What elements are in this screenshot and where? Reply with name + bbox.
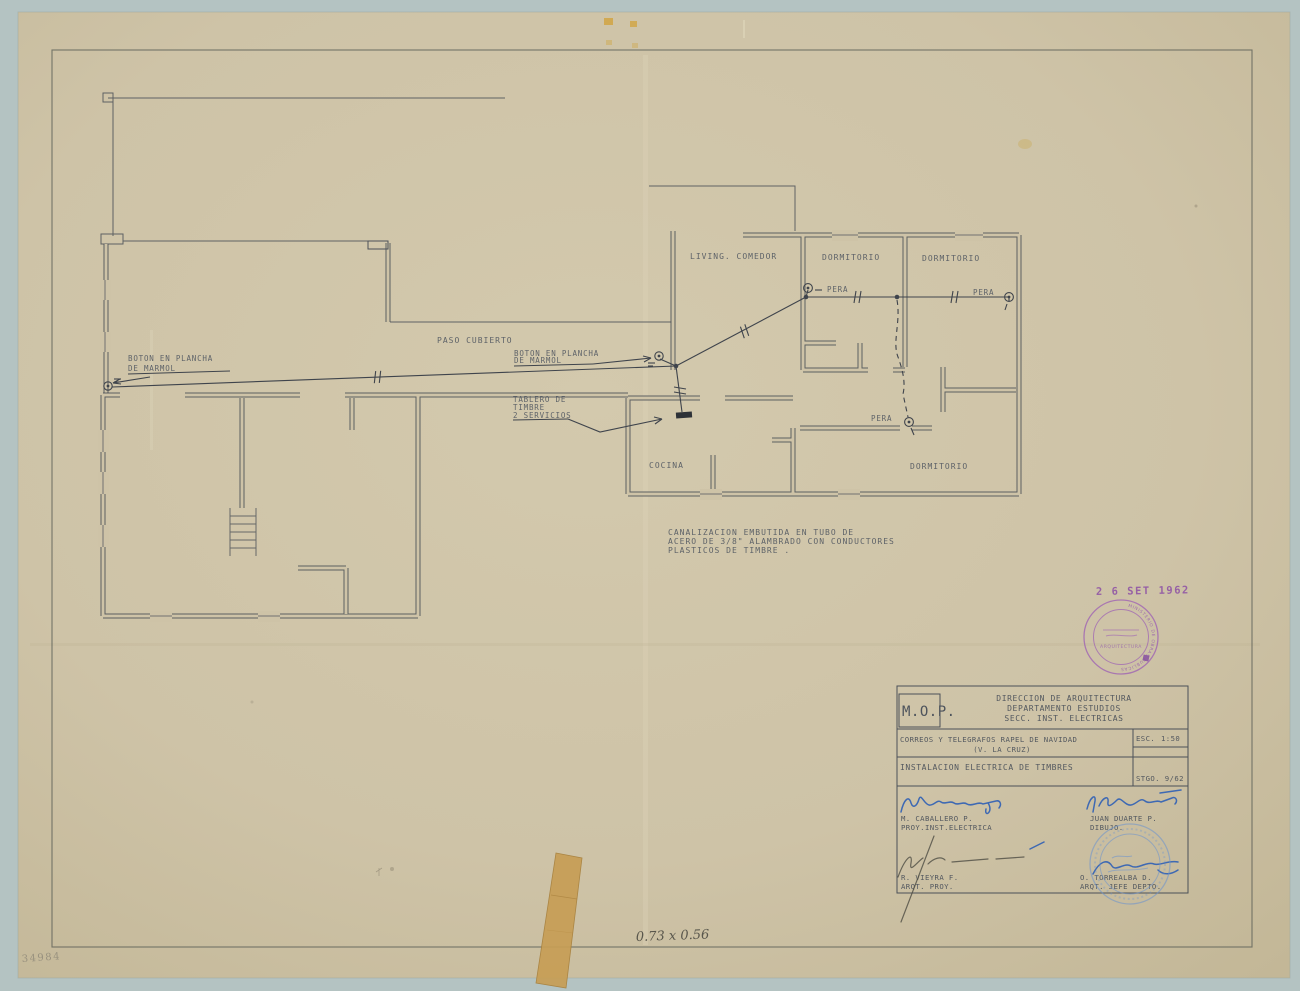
- room-label-living: LIVING. COMEDOR: [690, 252, 777, 261]
- sig3-name: R. VIEYRA F.: [901, 873, 959, 882]
- org-abbrev: M.O.P.: [902, 704, 956, 720]
- blueprint-scene: LIVING. COMEDOR DORMITORIO DORMITORIO DO…: [0, 0, 1300, 991]
- note-line-3: PLASTICOS DE TIMBRE .: [668, 546, 790, 555]
- sig1-name: M. CABALLERO P.: [901, 814, 973, 823]
- project-line-2: (V. LA CRUZ): [973, 745, 1031, 754]
- bell-panel-symbol: [676, 411, 692, 418]
- sig1-role: PROY.INST.ELECTRICA: [901, 823, 992, 832]
- pera-label-2: PERA: [973, 288, 994, 297]
- sig2-name: JUAN DUARTE P.: [1090, 814, 1157, 823]
- boton-left-line1: BOTON EN PLANCHA: [128, 354, 213, 363]
- boton-left-line2: DE MARMOL: [128, 364, 176, 373]
- room-label-dormitorio-3: DORMITORIO: [910, 462, 968, 471]
- dept-line-2: DEPARTAMENTO ESTUDIOS: [1007, 704, 1121, 713]
- room-label-dormitorio-1: DORMITORIO: [822, 253, 880, 262]
- sig3-role: ARQT. PROY.: [901, 882, 954, 891]
- note-line-2: ACERO DE 3/8" ALAMBRADO CON CONDUCTORES: [668, 537, 895, 546]
- room-label-cocina: COCINA: [649, 461, 684, 470]
- stamp-inner-text: ARQUITECTURA: [1100, 644, 1142, 650]
- dept-line-1: DIRECCION DE ARQUITECTURA: [996, 694, 1131, 703]
- boton-right-line2: DE MARMOL: [514, 356, 562, 365]
- room-label-dormitorio-2: DORMITORIO: [922, 254, 980, 263]
- dept-line-3: SECC. INST. ELECTRICAS: [1004, 714, 1123, 723]
- sheet-subject: INSTALACION ELECTRICA DE TIMBRES: [900, 763, 1073, 772]
- blueprint-canvas: LIVING. COMEDOR DORMITORIO DORMITORIO DO…: [0, 0, 1300, 991]
- scale-value: 1:50: [1161, 734, 1180, 743]
- note-line-1: CANALIZACION EMBUTIDA EN TUBO DE: [668, 528, 854, 537]
- date-stamp: 2 6 SET 1962: [1096, 584, 1190, 598]
- label-paso-cubierto: PASO CUBIERTO: [437, 336, 513, 345]
- pera-label-1: PERA: [827, 285, 848, 294]
- pera-label-3: PERA: [871, 414, 892, 423]
- scale-label: ESC.: [1136, 734, 1155, 743]
- tablero-line3: 2 SERVICIOS: [513, 411, 571, 420]
- plan-ref: STGO. 9/62: [1136, 774, 1184, 783]
- size-note-handwriting: 0.73 x 0.56: [636, 927, 710, 945]
- project-line-1: CORREOS Y TELEGRAFOS RAPEL DE NAVIDAD: [900, 735, 1077, 744]
